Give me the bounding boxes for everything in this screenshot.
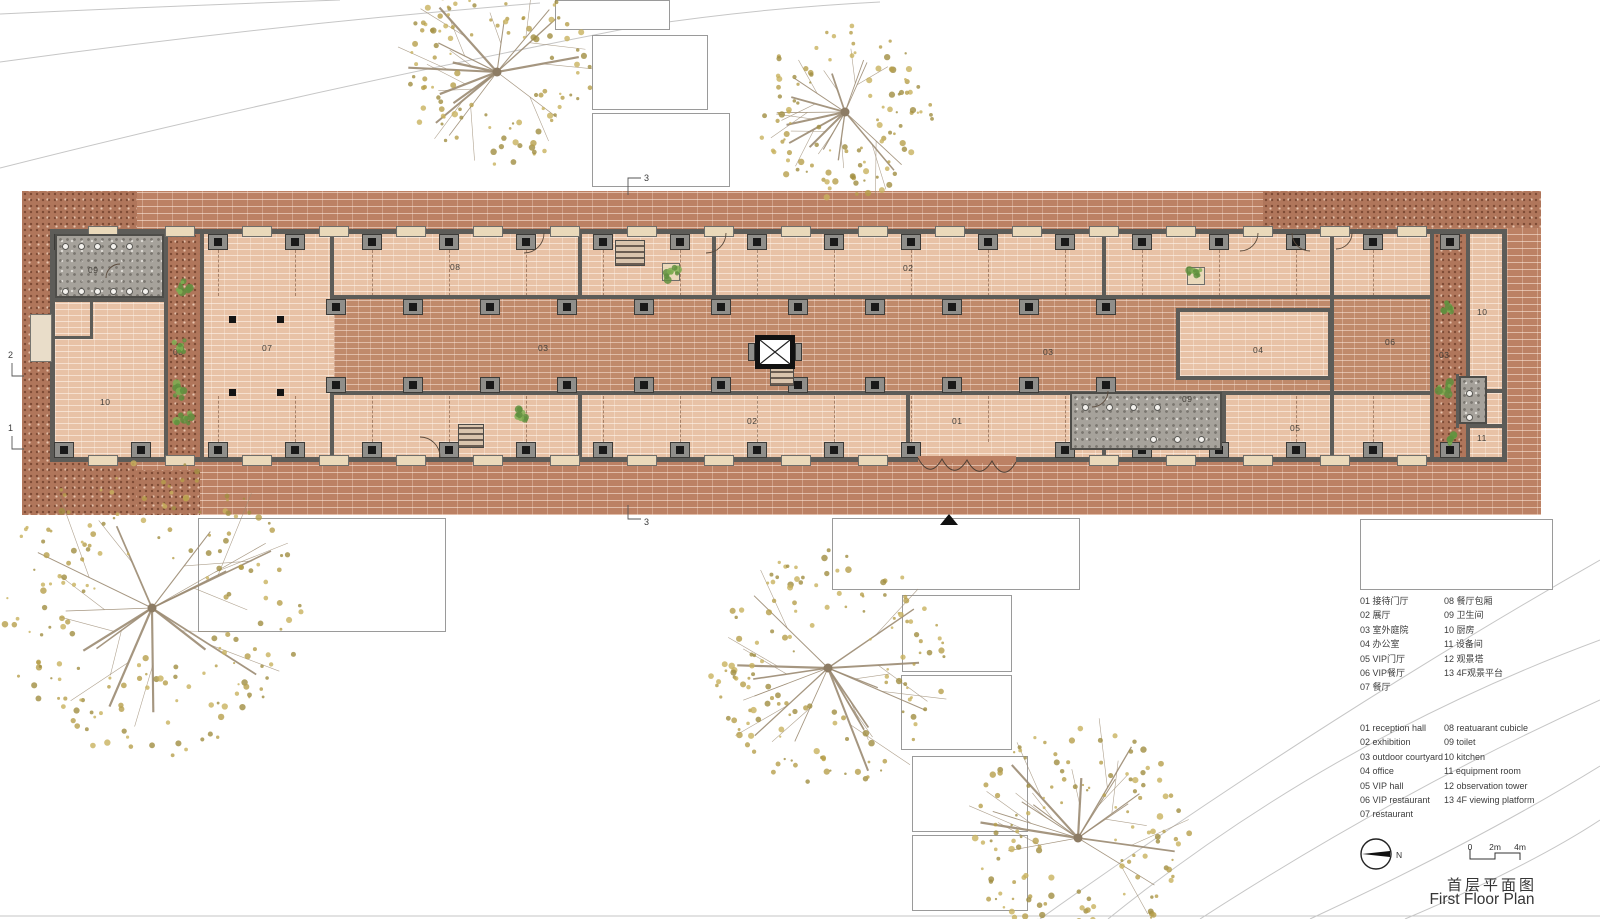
bay-division-line <box>1065 250 1066 296</box>
toilet-fixture <box>1150 436 1157 443</box>
drawing-title-en: First Floor Plan <box>1429 891 1534 909</box>
window-sill <box>704 226 734 237</box>
column-marker <box>1025 303 1033 311</box>
column-marker <box>291 446 299 454</box>
column-marker <box>332 303 340 311</box>
column-marker <box>640 381 648 389</box>
toilet-fixture <box>1466 414 1473 421</box>
toilet-fixture <box>62 243 69 250</box>
bay-division-line <box>218 250 219 296</box>
bay-division-line <box>449 396 450 442</box>
bay-division-line <box>295 396 296 442</box>
column-marker <box>676 238 684 246</box>
column-marker <box>214 238 222 246</box>
toilet-fixture <box>78 243 85 250</box>
column-marker <box>563 381 571 389</box>
toilet-fixture <box>110 243 117 250</box>
bay-division-line <box>526 250 527 296</box>
column-marker <box>1446 238 1454 246</box>
window-sill <box>1243 455 1273 466</box>
scale-tick-label: 0 <box>1468 842 1473 852</box>
window-sill <box>858 226 888 237</box>
room-number-label: 01 <box>952 416 972 426</box>
room-number-label: 04 <box>1253 345 1273 355</box>
toilet-fixture <box>142 288 149 295</box>
window-sill <box>704 455 734 466</box>
column-marker <box>984 238 992 246</box>
column-marker <box>599 238 607 246</box>
window-sill <box>1166 455 1196 466</box>
legend-item: 02 展厅 <box>1360 608 1409 622</box>
legend-item: 04 办公室 <box>1360 637 1409 651</box>
window-sill <box>319 455 349 466</box>
room-number-label: 05 <box>1290 423 1310 433</box>
legend-item: 12 observation tower <box>1444 779 1535 793</box>
legend-item: 09 卫生间 <box>1444 608 1503 622</box>
column-marker <box>1446 446 1454 454</box>
room-number-label: 03 <box>1439 350 1459 360</box>
room-number-label: 08 <box>450 262 470 272</box>
column-marker <box>368 238 376 246</box>
room-number-label: 02 <box>747 416 767 426</box>
courtyard-strip <box>168 233 200 459</box>
column-marker <box>599 446 607 454</box>
elevator-jamb <box>748 343 755 361</box>
column-marker <box>948 381 956 389</box>
window-sill <box>242 226 272 237</box>
legend-item: 03 outdoor courtyard <box>1360 750 1443 764</box>
column-marker <box>214 446 222 454</box>
scale-tick-label: 4m <box>1514 842 1526 852</box>
bay-division-line <box>680 250 681 296</box>
wall-segment <box>330 229 334 299</box>
legend-item: 01 接待门厅 <box>1360 594 1409 608</box>
window-sill <box>935 226 965 237</box>
room-number-label: 03 <box>173 347 193 357</box>
interior-column <box>229 316 236 323</box>
window-sill <box>1320 455 1350 466</box>
toilet-fixture <box>1466 390 1473 397</box>
legend-item: 13 4F观景平台 <box>1444 666 1503 680</box>
toilet-floor <box>1459 376 1487 424</box>
bay-division-line <box>372 396 373 442</box>
window-sill <box>1089 226 1119 237</box>
legend-item: 01 reception hall <box>1360 721 1443 735</box>
column-marker <box>830 238 838 246</box>
column-marker <box>1369 238 1377 246</box>
bay-division-line <box>1065 396 1066 442</box>
column-marker <box>830 446 838 454</box>
legend-item: 13 4F viewing platform <box>1444 793 1535 807</box>
toilet-fixture <box>94 288 101 295</box>
bay-division-line <box>1219 250 1220 296</box>
column-marker <box>60 446 68 454</box>
legend-item: 08 餐厅包厢 <box>1444 594 1503 608</box>
column-marker <box>871 381 879 389</box>
room-number-label: 09 <box>88 265 108 275</box>
legend-en-col1: 01 reception hall02 exhibition03 outdoor… <box>1360 721 1443 822</box>
window-sill <box>165 455 195 466</box>
window-sill <box>1397 455 1427 466</box>
column-marker <box>522 446 530 454</box>
room-number-label: 03 <box>538 343 558 353</box>
toilet-fixture <box>126 288 133 295</box>
column-marker <box>1102 303 1110 311</box>
legend-item: 11 equipment room <box>1444 764 1535 778</box>
elevator-shaft <box>755 335 795 369</box>
toilet-fixture <box>110 288 117 295</box>
column-marker <box>486 303 494 311</box>
column-marker <box>1292 446 1300 454</box>
wall-segment <box>1430 229 1434 462</box>
toilet-fixture <box>62 288 69 295</box>
column-marker <box>1025 381 1033 389</box>
bay-division-line <box>988 396 989 442</box>
toilet-fixture <box>126 243 133 250</box>
gravel-area <box>1263 191 1541 228</box>
toilet-fixture <box>78 288 85 295</box>
column-marker <box>1061 446 1069 454</box>
legend-item: 06 VIP restaurant <box>1360 793 1443 807</box>
toilet-fixture <box>1130 404 1137 411</box>
window-sill <box>627 226 657 237</box>
bay-division-line <box>911 396 912 442</box>
window-sill <box>1089 455 1119 466</box>
column-marker <box>1292 238 1300 246</box>
column-marker <box>717 381 725 389</box>
bay-division-line <box>1296 250 1297 296</box>
legend-item: 05 VIP门厅 <box>1360 652 1409 666</box>
planter-box <box>662 263 680 281</box>
wall-segment <box>1328 308 1332 380</box>
column-marker <box>332 381 340 389</box>
window-sill <box>396 226 426 237</box>
legend-item: 07 restaurant <box>1360 807 1443 821</box>
window-sill <box>242 455 272 466</box>
legend-item: 09 toilet <box>1444 735 1535 749</box>
bay-division-line <box>1373 396 1374 442</box>
office-floor <box>1180 312 1328 376</box>
window-sill <box>627 455 657 466</box>
column-marker <box>1369 446 1377 454</box>
window-sill <box>1166 226 1196 237</box>
stairs <box>615 240 645 266</box>
column-marker <box>1102 381 1110 389</box>
column-marker <box>676 446 684 454</box>
window-sill <box>1397 226 1427 237</box>
wall-segment <box>1176 376 1332 380</box>
bay-division-line <box>834 396 835 442</box>
room-number-label: 03 <box>1043 347 1063 357</box>
legend-item: 02 exhibition <box>1360 735 1443 749</box>
legend-box <box>1360 519 1553 590</box>
window-sill <box>550 455 580 466</box>
window-sill <box>165 226 195 237</box>
legend-item: 12 观景塔 <box>1444 652 1503 666</box>
interior-column <box>277 316 284 323</box>
window-sill <box>473 226 503 237</box>
column-marker <box>794 381 802 389</box>
legend-item: 07 餐厅 <box>1360 680 1409 694</box>
column-marker <box>794 303 802 311</box>
bay-division-line <box>680 396 681 442</box>
toilet-fixture <box>1174 436 1181 443</box>
column-marker <box>409 303 417 311</box>
window-sill <box>781 455 811 466</box>
bay-division-line <box>218 396 219 442</box>
window-sill <box>1243 226 1273 237</box>
column-marker <box>486 381 494 389</box>
window-sill <box>88 455 118 466</box>
interior-column <box>229 389 236 396</box>
column-marker <box>753 446 761 454</box>
scale-tick-label: 2m <box>1489 842 1501 852</box>
window-sill <box>550 226 580 237</box>
room-number-label: 10 <box>1477 307 1497 317</box>
column-marker <box>753 238 761 246</box>
bay-division-line <box>603 396 604 442</box>
column-marker <box>907 446 915 454</box>
toilet-fixture <box>1198 436 1205 443</box>
wall-segment <box>50 336 90 339</box>
toilet-fixture <box>1106 404 1113 411</box>
legend-item: 10 厨房 <box>1444 623 1503 637</box>
planter-box <box>1187 267 1205 285</box>
gravel-area <box>137 470 200 515</box>
wall-segment <box>1466 424 1506 428</box>
room-number-label: 09 <box>1182 394 1202 404</box>
window-sill <box>781 226 811 237</box>
bay-division-line <box>449 250 450 296</box>
legend-item: 03 室外庭院 <box>1360 623 1409 637</box>
column-marker <box>1061 238 1069 246</box>
elevator-jamb <box>795 343 802 361</box>
bay-division-line <box>988 250 989 296</box>
bay-division-line <box>1296 396 1297 442</box>
stairs <box>770 366 794 386</box>
wall-segment <box>1102 229 1106 299</box>
interior-column <box>277 389 284 396</box>
wall-segment <box>330 391 334 462</box>
legend-cn-col1: 01 接待门厅02 展厅03 室外庭院04 办公室05 VIP门厅06 VIP餐… <box>1360 594 1409 695</box>
room-number-label: 10 <box>100 397 120 407</box>
bay-division-line <box>603 250 604 296</box>
legend-item: 06 VIP餐厅 <box>1360 666 1409 680</box>
bay-division-line <box>372 250 373 296</box>
bay-division-line <box>1373 250 1374 296</box>
entrance-opening <box>918 456 1016 463</box>
window-sill <box>473 455 503 466</box>
column-marker <box>445 446 453 454</box>
room-number-label: 06 <box>1385 337 1405 347</box>
window-sill <box>396 455 426 466</box>
toilet-fixture <box>1082 404 1089 411</box>
room-number-label: 07 <box>262 343 282 353</box>
wall-segment <box>90 298 93 339</box>
bay-division-line <box>295 250 296 296</box>
toilet-fixture <box>1154 404 1161 411</box>
courtyard-strip <box>1434 233 1466 459</box>
column-marker <box>907 238 915 246</box>
entry-ramp <box>30 314 52 362</box>
legend-en-col2: 08 reatuarant cubicle09 toilet10 kitchen… <box>1444 721 1535 807</box>
column-marker <box>445 238 453 246</box>
column-marker <box>409 381 417 389</box>
wall-segment <box>200 229 204 462</box>
window-sill <box>319 226 349 237</box>
window-sill <box>858 455 888 466</box>
floor-plan-drawing: 0903071008030202010309040506031011 3321N… <box>0 0 1600 919</box>
column-marker <box>522 238 530 246</box>
bay-division-line <box>1142 250 1143 296</box>
room-number-label: 02 <box>903 263 923 273</box>
north-entrance-marker <box>940 514 958 525</box>
column-marker <box>291 238 299 246</box>
column-marker <box>1215 238 1223 246</box>
wall-segment <box>712 229 716 299</box>
legend-item: 11 设备间 <box>1444 637 1503 651</box>
column-marker <box>640 303 648 311</box>
bay-division-line <box>834 250 835 296</box>
bay-division-line <box>757 250 758 296</box>
room-number-label: 11 <box>1477 433 1497 443</box>
column-marker <box>368 446 376 454</box>
wall-segment <box>578 229 582 299</box>
window-sill <box>1320 226 1350 237</box>
legend-item: 08 reatuarant cubicle <box>1444 721 1535 735</box>
column-marker <box>717 303 725 311</box>
column-marker <box>563 303 571 311</box>
legend-item: 04 office <box>1360 764 1443 778</box>
column-marker <box>948 303 956 311</box>
bay-division-line <box>526 396 527 442</box>
column-marker <box>871 303 879 311</box>
legend-item: 05 VIP hall <box>1360 779 1443 793</box>
column-marker <box>1138 238 1146 246</box>
bay-division-line <box>911 250 912 296</box>
stairs <box>458 424 484 448</box>
toilet-fixture <box>94 243 101 250</box>
wall-segment <box>50 298 166 302</box>
column-marker <box>137 446 145 454</box>
legend-cn-col2: 08 餐厅包厢09 卫生间10 厨房11 设备间12 观景塔13 4F观景平台 <box>1444 594 1503 680</box>
wall-segment <box>578 391 582 462</box>
window-sill <box>1012 226 1042 237</box>
legend-item: 10 kitchen <box>1444 750 1535 764</box>
